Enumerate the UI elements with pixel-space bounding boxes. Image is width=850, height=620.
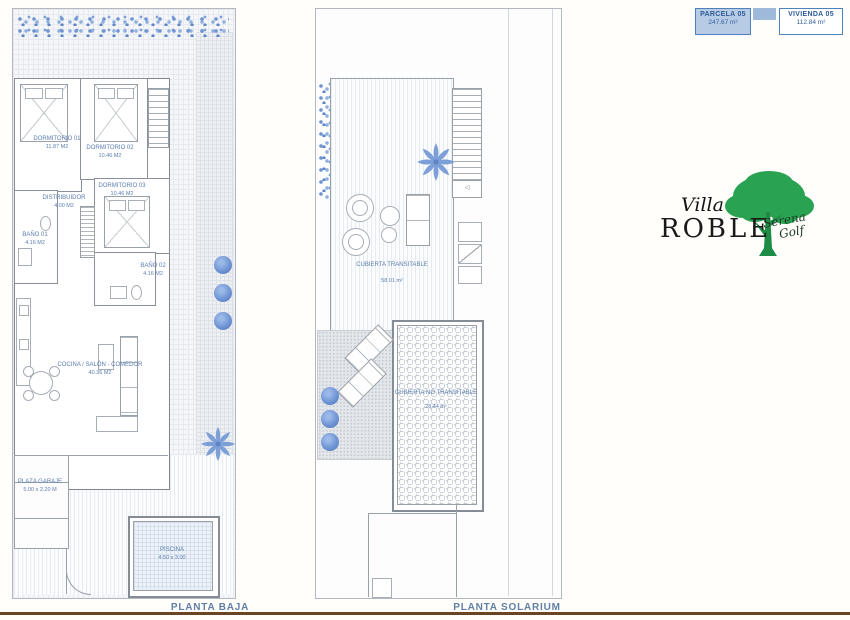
room-label-bano2: BAÑO 02 4.16 M2	[123, 263, 183, 278]
info-box-parcela: PARCELA 05 247.67 m²	[695, 8, 751, 35]
counter-module-icon	[458, 266, 482, 284]
chair-icon	[23, 366, 34, 377]
chair-seat-icon	[352, 200, 368, 216]
pillow-icon	[117, 88, 134, 99]
room-label-salon: COCINA / SALÓN - COMEDOR 40.36 M2	[55, 362, 145, 377]
chair-icon	[49, 390, 60, 401]
logo-roble-text: ROBLE	[660, 214, 771, 244]
counter-module-icon	[458, 222, 482, 242]
vivienda-title: VIVIENDA 05	[780, 11, 842, 18]
boundary-line	[552, 9, 553, 596]
bush-icon	[214, 312, 232, 330]
toilet-icon	[131, 285, 142, 300]
bed-icon	[104, 196, 150, 248]
room-label-dormitorio3: DORMITORIO 03 10.46 M2	[92, 183, 152, 198]
stairs-icon	[148, 88, 169, 148]
pillow-icon	[128, 200, 146, 211]
room-label-piscina: PISCINA 4.50 x 3.00	[142, 547, 202, 562]
room-label-garaje: PLAZA GARAJE 5.00 x 2.20 M	[10, 479, 70, 494]
tv-bench-icon	[96, 416, 138, 432]
info-box-vivienda: VIVIENDA 05 112.84 m²	[779, 8, 843, 35]
palm-tree-icon	[414, 140, 458, 184]
palm-tree-icon	[198, 424, 238, 464]
bottom-rule	[0, 612, 850, 615]
roof-edge-line	[456, 505, 457, 597]
parcela-title: PARCELA 05	[696, 11, 750, 18]
side-table-icon	[380, 206, 400, 226]
room-label-dormitorio2: DORMITORIO 02 10.46 M2	[80, 145, 140, 160]
chair-icon	[23, 390, 34, 401]
side-table-icon	[381, 227, 397, 243]
round-chair-icon	[342, 228, 370, 256]
sink-icon	[110, 286, 127, 299]
area-label-no-transitable: CUBIERTA NO TRANSITABLE 28.44 m²	[391, 390, 481, 411]
sink-icon	[19, 339, 29, 350]
vivienda-area: 112.84 m²	[780, 19, 842, 26]
sofa-icon	[406, 194, 430, 246]
bush-icon	[321, 387, 339, 405]
sink-icon	[18, 248, 32, 266]
bush-icon	[214, 284, 232, 302]
pillow-icon	[109, 200, 127, 211]
pillow-icon	[98, 88, 115, 99]
bush-icon	[214, 256, 232, 274]
room-label-dormitorio1: DORMITORIO 01 11.87 M2	[27, 136, 87, 151]
room-label-bano1: BAÑO 01 4.16 M2	[5, 232, 65, 247]
hob-icon	[19, 305, 29, 316]
chimney-icon	[372, 578, 392, 598]
roof-edge-line	[368, 513, 369, 597]
toilet-icon	[40, 216, 51, 231]
bush-icon	[321, 433, 339, 451]
garage-line	[15, 518, 68, 519]
pillow-icon	[25, 88, 44, 99]
roof-edge-line	[368, 513, 456, 514]
area-label-transitable: CUBIERTA TRANSITABLE 58.01 m²	[347, 262, 437, 285]
info-box-divider	[753, 8, 776, 20]
bush-icon	[321, 410, 339, 428]
cubierta-no-transitable-area	[397, 325, 477, 505]
logo-villa-text: Villa	[681, 194, 724, 216]
bed-icon	[20, 84, 68, 142]
round-chair-icon	[346, 194, 374, 222]
counter-module-icon	[458, 244, 482, 264]
chair-seat-icon	[348, 234, 364, 250]
shrub-band-icon	[17, 15, 229, 37]
pillow-icon	[45, 88, 64, 99]
boundary-line	[508, 9, 509, 596]
room-label-distribuidor: DISTRIBUIDOR 4.00 M2	[34, 195, 94, 210]
parcela-area: 247.67 m²	[696, 19, 750, 26]
plan-sheet: { "info_boxes": { "parcela": { "title": …	[0, 0, 850, 620]
garage-bay	[14, 455, 69, 549]
bed-icon	[94, 84, 138, 142]
closet-icon	[80, 206, 95, 258]
